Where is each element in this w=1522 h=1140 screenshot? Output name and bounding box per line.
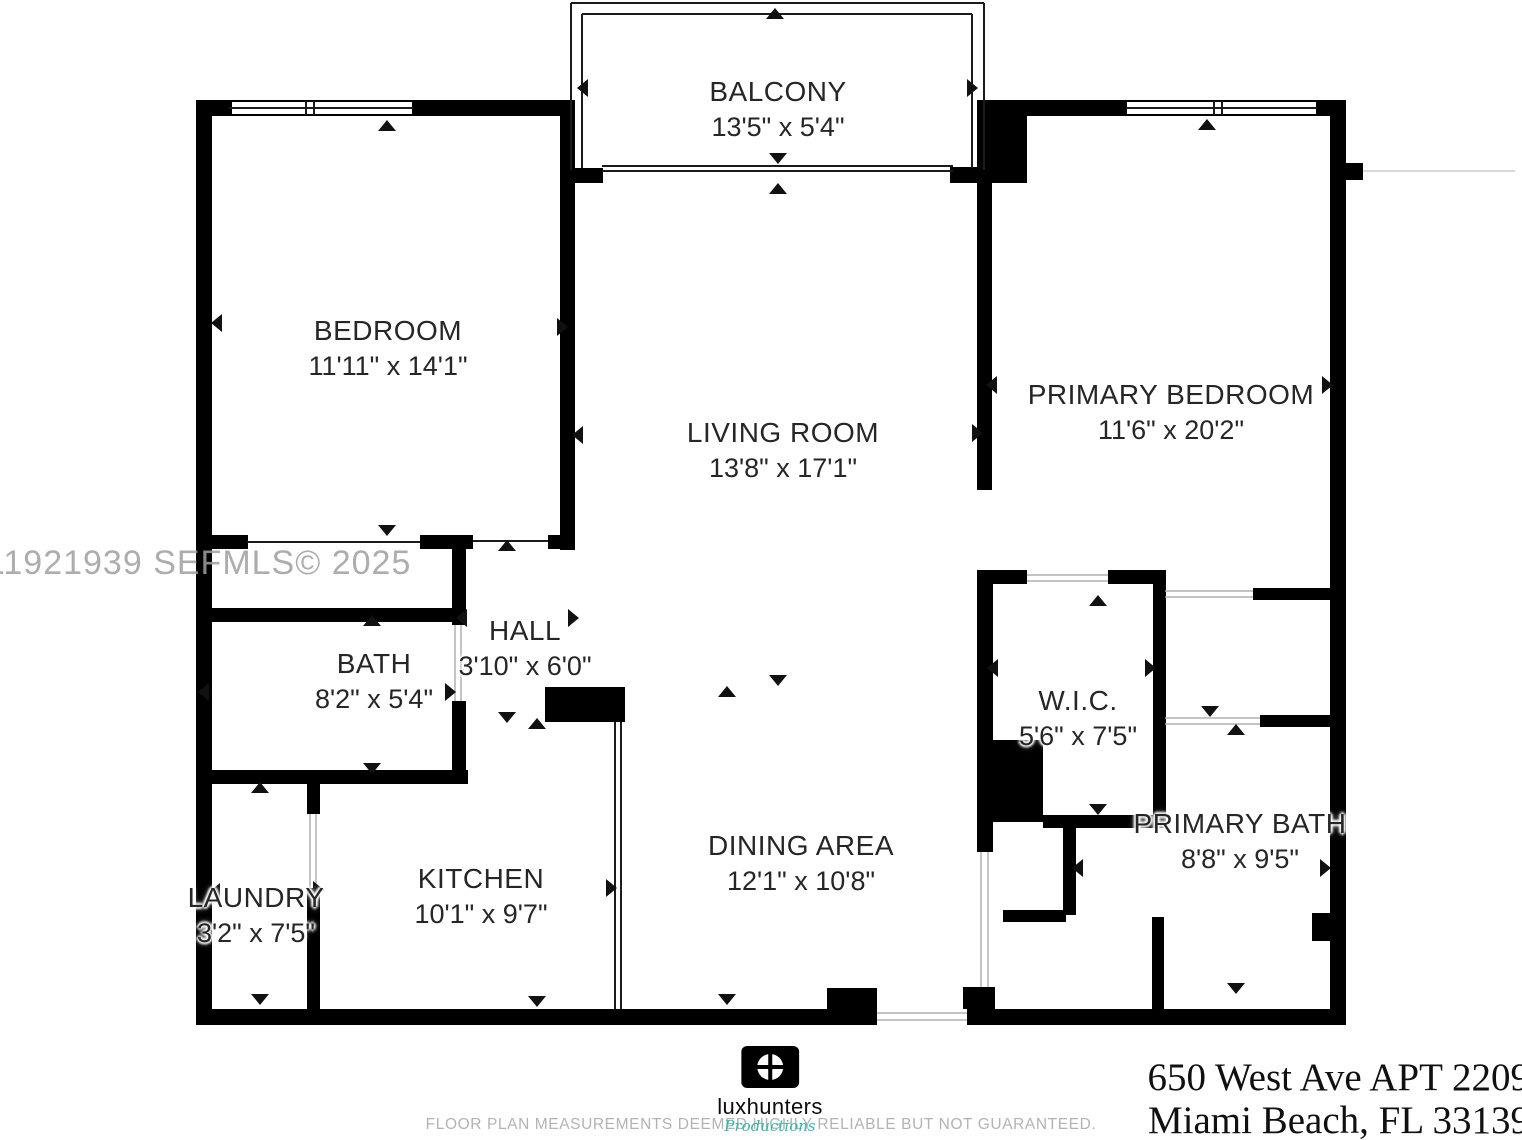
measure-arrow-icon [528, 718, 546, 729]
wall-segment [196, 1009, 877, 1025]
wall-segment [977, 183, 992, 490]
wall-segment [963, 987, 995, 1009]
room-label-primary-bath: PRIMARY BATH 8'8" x 9'5" [1134, 808, 1347, 875]
room-name: HALL [458, 615, 591, 647]
room-label-wic: W.I.C. 5'6" x 7'5" [1019, 685, 1137, 752]
luxhunters-logo: luxhunters Productions [717, 1046, 823, 1135]
room-dims: 11'6" x 20'2" [1028, 415, 1315, 446]
measure-arrow-icon [769, 675, 787, 686]
measure-arrow-icon [1089, 804, 1107, 815]
address-line1: 650 West Ave APT 2209 [1147, 1056, 1522, 1099]
property-address: 650 West Ave APT 2209 Miami Beach, FL 33… [1147, 1056, 1522, 1140]
room-name: LIVING ROOM [687, 417, 879, 449]
wall-segment [548, 535, 575, 549]
wall-segment [977, 570, 1027, 584]
room-dims: 13'8" x 17'1" [687, 453, 879, 484]
measure-arrow-icon [718, 994, 736, 1005]
wall-segment [420, 535, 473, 549]
room-label-hall: HALL 3'10" x 6'0" [458, 615, 591, 682]
camera-reticle-icon [741, 1046, 799, 1088]
wall-segment [573, 168, 603, 183]
wall-segment [1253, 588, 1331, 600]
wall-segment [196, 770, 468, 784]
wall-segment [1260, 715, 1331, 727]
measure-arrow-icon [769, 183, 787, 194]
room-dims: 13'5" x 5'4" [709, 112, 846, 143]
wall-segment [196, 100, 232, 116]
room-name: PRIMARY BEDROOM [1028, 379, 1315, 411]
wall-segment [967, 1009, 1346, 1025]
room-dims: 11'11" x 14'1" [308, 351, 467, 382]
room-name: BEDROOM [308, 315, 467, 347]
measure-arrow-icon [769, 153, 787, 164]
wall-segment [1330, 163, 1363, 180]
wall-segment [1003, 910, 1066, 922]
wall-segment [1312, 913, 1332, 941]
room-name: LAUNDRY [188, 882, 325, 914]
room-dims: 3'2" x 7'5" [188, 918, 325, 949]
measure-arrow-icon [498, 712, 516, 723]
room-name: W.I.C. [1019, 685, 1137, 717]
room-label-kitchen: KITCHEN 10'1" x 9'7" [414, 863, 547, 930]
measure-arrow-icon [1227, 983, 1245, 994]
floorplan-page: 11921939 SEFMLS© 2025 BALCONY 13'5" x 5'… [0, 0, 1522, 1140]
measure-arrow-icon [1201, 706, 1219, 717]
room-label-bedroom: BEDROOM 11'11" x 14'1" [308, 315, 467, 382]
wall-segment [307, 784, 320, 814]
measure-arrow-icon [211, 314, 222, 332]
room-dims: 12'1" x 10'8" [708, 866, 894, 897]
room-name: PRIMARY BATH [1134, 808, 1347, 840]
wall-segment [1063, 828, 1076, 915]
room-label-laundry: LAUNDRY 3'2" x 7'5" [188, 882, 325, 949]
wall-segment [545, 687, 625, 722]
measure-arrow-icon [528, 996, 546, 1007]
wall-segment [977, 820, 993, 852]
address-line2: Miami Beach, FL 33139 [1147, 1099, 1522, 1140]
wall-segment [1330, 100, 1346, 1025]
measure-arrow-icon [378, 525, 396, 536]
room-dims: 8'8" x 9'5" [1134, 844, 1347, 875]
measure-arrow-icon [251, 994, 269, 1005]
wall-segment [977, 570, 993, 742]
wall-segment [196, 608, 466, 622]
wall-segment [827, 988, 877, 1009]
logo-tagline: Productions [717, 1117, 823, 1135]
room-dims: 8'2" x 5'4" [315, 684, 433, 715]
measure-arrow-icon [378, 120, 396, 131]
room-dims: 10'1" x 9'7" [414, 899, 547, 930]
measure-arrow-icon [718, 686, 736, 697]
measure-arrow-icon [1089, 595, 1107, 606]
mls-watermark: 11921939 SEFMLS© 2025 [0, 544, 411, 583]
room-label-bath: BATH 8'2" x 5'4" [315, 648, 433, 715]
wall-segment [1152, 917, 1164, 1011]
room-name: BALCONY [709, 76, 846, 108]
room-dims: 3'10" x 6'0" [458, 651, 591, 682]
room-label-balcony: BALCONY 13'5" x 5'4" [709, 76, 846, 143]
room-label-living-room: LIVING ROOM 13'8" x 17'1" [687, 417, 879, 484]
measure-arrow-icon [1227, 724, 1245, 735]
room-name: DINING AREA [708, 830, 894, 862]
measure-arrow-icon [1198, 119, 1216, 130]
room-label-dining-area: DINING AREA 12'1" x 10'8" [708, 830, 894, 897]
wall-segment [1153, 570, 1166, 828]
room-name: BATH [315, 648, 433, 680]
wall-segment [977, 740, 1043, 822]
room-label-primary-bedroom: PRIMARY BEDROOM 11'6" x 20'2" [1028, 379, 1315, 446]
wall-segment [412, 100, 575, 116]
room-name: KITCHEN [414, 863, 547, 895]
room-dims: 5'6" x 7'5" [1019, 721, 1137, 752]
